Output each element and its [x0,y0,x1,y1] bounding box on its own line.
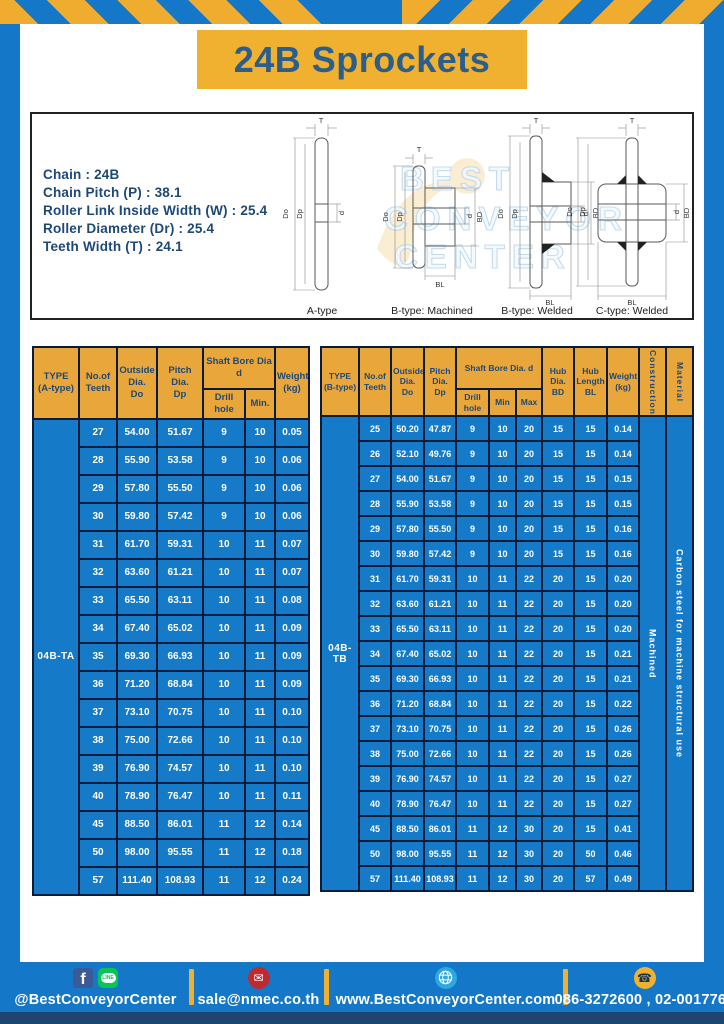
col-header-pitch-dia: Pitch Dia. Dp [157,347,203,419]
table-cell: 0.06 [275,447,309,475]
table-cell: 12 [245,839,275,867]
table-cell: 40 [359,791,391,816]
table-cell: 98.00 [391,841,424,866]
table-cell: 15 [574,691,607,716]
table-cell: 10 [456,666,489,691]
dim-label-dp: Dp [395,212,404,222]
table-cell: 12 [245,867,275,895]
table-cell: 55.50 [157,475,203,503]
dim-label-t: T [417,145,422,154]
table-cell: 71.20 [117,671,157,699]
dim-label-dp: Dp [510,209,519,219]
table-cell: 15 [574,416,607,441]
table-cell: 15 [574,591,607,616]
table-cell: 9 [456,441,489,466]
table-cell: 11 [245,643,275,671]
table-cell: 50.20 [391,416,424,441]
table-row: 04B-TB2550.2047.879102015150.14MachinedC… [321,416,693,441]
spec-line: Roller Diameter (Dr) : 25.4 [43,220,267,238]
table-row: 4588.5086.0111123020150.41 [321,816,693,841]
table-cell: 0.09 [275,643,309,671]
table-cell: 71.20 [391,691,424,716]
table-cell: 29 [79,475,117,503]
construction-cell: Machined [639,416,666,891]
table-cell: 39 [79,755,117,783]
table-cell: 10 [456,691,489,716]
table-cell: 15 [574,716,607,741]
table-cell: 9 [456,416,489,441]
dim-label-bd: BD [682,207,691,218]
spec-line: Chain : 24B [43,166,267,184]
table-cell: 10 [203,559,245,587]
table-cell: 10 [489,516,516,541]
table-a-type: TYPE (A-type) No.of Teeth Outside Dia. D… [32,346,310,896]
table-cell: 0.41 [607,816,639,841]
table-cell: 11 [456,841,489,866]
table-cell: 0.06 [275,503,309,531]
table-cell: 61.70 [391,566,424,591]
table-cell: 70.75 [157,699,203,727]
email-address[interactable]: sale@nmec.co.th [198,992,320,1008]
envelope-glyph: ✉ [253,972,263,984]
table-cell: 27 [359,466,391,491]
table-cell: 0.27 [607,766,639,791]
table-cell: 20 [542,616,574,641]
table-cell: 76.90 [117,755,157,783]
table-cell: 57 [359,866,391,891]
dim-label-do: Do [381,212,390,222]
table-cell: 20 [516,416,542,441]
table-cell: 34 [359,641,391,666]
dim-label-dp: Dp [578,207,587,217]
table-a-header: TYPE (A-type) No.of Teeth Outside Dia. D… [33,347,309,419]
table-cell: 15 [542,491,574,516]
title-banner: 24B Sprockets [197,30,527,89]
table-row: 2957.8055.509102015150.16 [321,516,693,541]
table-cell: 0.26 [607,741,639,766]
table-cell: 20 [542,591,574,616]
table-cell: 54.00 [391,466,424,491]
footer-website-group[interactable]: www.BestConveyorCenter.com [329,967,563,1008]
table-cell: 0.46 [607,841,639,866]
table-cell: 61.21 [157,559,203,587]
table-cell: 35 [359,666,391,691]
table-cell: 10 [203,699,245,727]
email-icon[interactable]: ✉ [248,967,270,989]
table-cell: 15 [574,791,607,816]
table-cell: 0.16 [607,516,639,541]
table-cell: 10 [489,441,516,466]
table-cell: 10 [203,531,245,559]
table-cell: 9 [203,503,245,531]
dim-label-bd: BD [475,211,484,222]
table-cell: 63.60 [117,559,157,587]
table-row: 3569.3066.9310112220150.21 [321,666,693,691]
table-row: 04B-TA2754.0051.679100.05 [33,419,309,447]
table-cell: 37 [359,716,391,741]
table-cell: 20 [516,441,542,466]
table-cell: 72.66 [157,727,203,755]
globe-glyph [438,970,453,985]
table-cell: 38 [359,741,391,766]
table-cell: 0.06 [275,475,309,503]
table-cell: 78.90 [117,783,157,811]
table-cell: 11 [489,641,516,666]
table-cell: 0.26 [607,716,639,741]
col-header-max: Max [516,389,542,416]
col-header-drill-hole: Drill hole [203,389,245,419]
table-cell: 15 [542,441,574,466]
table-row: 2754.0051.679102015150.15 [321,466,693,491]
table-cell: 45 [359,816,391,841]
table-cell: 33 [359,616,391,641]
table-cell: 22 [516,716,542,741]
table-cell: 0.24 [275,867,309,895]
table-cell: 10 [456,766,489,791]
table-cell: 68.84 [157,671,203,699]
table-cell: 10 [203,643,245,671]
table-cell: 15 [574,566,607,591]
dim-label-bd: BD [591,207,600,218]
table-cell: 10 [456,566,489,591]
table-cell: 51.67 [424,466,456,491]
table-cell: 98.00 [117,839,157,867]
table-cell: 9 [456,516,489,541]
table-cell: 22 [516,791,542,816]
table-cell: 59.80 [391,541,424,566]
table-cell: 63.11 [424,616,456,641]
table-cell: 10 [203,783,245,811]
table-cell: 22 [516,566,542,591]
table-cell: 10 [489,416,516,441]
bottom-navy-strip [0,1012,724,1024]
table-cell: 11 [203,839,245,867]
table-cell: 20 [542,841,574,866]
table-cell: 31 [359,566,391,591]
table-row: 3976.9074.5710112220150.27 [321,766,693,791]
table-row: 3773.1070.7510112220150.26 [321,716,693,741]
table-row: 3161.7059.3110112220150.20 [321,566,693,591]
table-cell: 63.60 [391,591,424,616]
table-a-body: 04B-TA2754.0051.679100.052855.9053.58910… [33,419,309,895]
table-cell: 11 [489,766,516,791]
table-cell: 11 [489,666,516,691]
table-cell: 15 [574,666,607,691]
table-cell: 57 [574,866,607,891]
col-header-weight: Weight (kg) [607,347,639,416]
table-cell: 10 [245,419,275,447]
dim-label-t: T [534,116,539,125]
table-cell: 36 [79,671,117,699]
table-cell: 20 [542,666,574,691]
page-title: 24B Sprockets [234,39,491,81]
table-cell: 0.15 [607,466,639,491]
table-cell: 15 [574,616,607,641]
table-cell: 67.40 [391,641,424,666]
table-cell: 10 [203,671,245,699]
table-b-header: TYPE (B-type) No.of Teeth Outside Dia. D… [321,347,693,416]
table-cell: 15 [542,466,574,491]
table-cell: 53.58 [424,491,456,516]
table-cell: 39 [359,766,391,791]
table-cell: 86.01 [424,816,456,841]
table-cell: 63.11 [157,587,203,615]
table-cell: 73.10 [117,699,157,727]
table-row: 3875.0072.6610112220150.26 [321,741,693,766]
table-cell: 9 [456,541,489,566]
table-cell: 10 [245,475,275,503]
dim-label-do: Do [281,209,290,219]
table-cell: 11 [489,691,516,716]
table-cell: 70.75 [424,716,456,741]
facebook-letter: f [80,971,85,988]
table-b-body: 04B-TB2550.2047.879102015150.14MachinedC… [321,416,693,891]
table-cell: 11 [489,716,516,741]
top-stripes-left [0,0,322,24]
table-cell: 0.49 [607,866,639,891]
table-cell: 10 [489,466,516,491]
table-cell: 30 [516,816,542,841]
phone-icon[interactable]: ☎ [634,967,656,989]
table-cell: 22 [516,616,542,641]
table-cell: 76.47 [424,791,456,816]
dim-label-t: T [630,116,635,125]
footer-social-group[interactable]: f LINE @BestConveyorCenter [3,967,189,1008]
table-cell: 69.30 [117,643,157,671]
table-cell: 65.02 [157,615,203,643]
table-cell: 0.07 [275,559,309,587]
table-cell: 10 [203,755,245,783]
dim-label-bl: BL [435,280,444,289]
footer-email-group[interactable]: ✉ sale@nmec.co.th [194,967,324,1008]
table-cell: 67.40 [117,615,157,643]
table-cell: 55.90 [117,447,157,475]
drawing-caption: A-type [307,305,338,317]
table-cell: 59.31 [424,566,456,591]
table-cell: 49.76 [424,441,456,466]
table-cell: 50 [359,841,391,866]
table-cell: 12 [489,816,516,841]
table-cell: 10 [245,447,275,475]
dim-label-do: Do [565,207,574,217]
table-row: 3671.2068.8410112220150.22 [321,691,693,716]
table-row: 3059.8057.429102015150.16 [321,541,693,566]
table-row: 3263.6061.2110112220150.20 [321,591,693,616]
table-cell: 65.50 [117,587,157,615]
table-cell: 0.20 [607,616,639,641]
line-bubble: LINE [101,973,116,983]
col-header-weight: Weight (kg) [275,347,309,419]
type-cell: 04B-TB [321,416,359,891]
table-cell: 74.57 [424,766,456,791]
col-header-construction: Construction [639,347,666,416]
table-cell: 37 [79,699,117,727]
dim-label-d: d [672,210,681,214]
table-cell: 10 [456,641,489,666]
table-cell: 22 [516,591,542,616]
table-cell: 11 [245,699,275,727]
table-cell: 52.10 [391,441,424,466]
footer-phone-group[interactable]: ☎ 086-3272600 , 02-0017766 [568,967,722,1008]
table-cell: 20 [542,766,574,791]
table-cell: 50 [574,841,607,866]
table-cell: 59.80 [117,503,157,531]
col-header-hub-length: Hub Length BL [574,347,607,416]
table-cell: 32 [79,559,117,587]
table-cell: 0.21 [607,641,639,666]
table-cell: 59.31 [157,531,203,559]
col-header-pitch-dia: Pitch Dia. Dp [424,347,456,416]
material-cell: Carbon steel for machine structural use [666,416,693,891]
table-cell: 0.14 [275,811,309,839]
footer-contact-bar: f LINE @BestConveyorCenter ✉ sale@nmec.c… [0,962,724,1012]
col-header-drill-hole: Drill hole [456,389,489,416]
table-cell: 57.80 [391,516,424,541]
table-cell: 28 [79,447,117,475]
table-cell: 30 [79,503,117,531]
table-cell: 47.87 [424,416,456,441]
table-cell: 10 [456,591,489,616]
table-cell: 95.55 [157,839,203,867]
facebook-icon[interactable]: f [73,968,93,988]
table-cell: 15 [574,441,607,466]
table-cell: 9 [203,475,245,503]
table-cell: 15 [574,741,607,766]
table-cell: 12 [489,841,516,866]
table-cell: 20 [516,541,542,566]
dim-label-d: d [337,211,346,215]
table-cell: 57.42 [424,541,456,566]
table-cell: 11 [245,783,275,811]
table-cell: 22 [516,741,542,766]
table-cell: 15 [574,466,607,491]
table-cell: 11 [245,587,275,615]
table-cell: 0.20 [607,566,639,591]
table-cell: 11 [456,866,489,891]
table-cell: 15 [574,516,607,541]
table-cell: 10 [203,727,245,755]
spec-line: Chain Pitch (P) : 38.1 [43,184,267,202]
table-cell: 15 [574,641,607,666]
table-cell: 0.14 [607,441,639,466]
col-header-outside-dia: Outside Dia. Do [117,347,157,419]
col-header-min: Min [489,389,516,416]
dim-label-t: T [319,116,324,125]
table-b-type: TYPE (B-type) No.of Teeth Outside Dia. D… [320,346,694,892]
table-cell: 108.93 [424,866,456,891]
table-cell: 55.50 [424,516,456,541]
table-cell: 73.10 [391,716,424,741]
table-cell: 0.11 [275,783,309,811]
table-row: 2855.9053.589102015150.15 [321,491,693,516]
table-cell: 75.00 [391,741,424,766]
table-cell: 15 [574,816,607,841]
table-cell: 10 [203,587,245,615]
table-cell: 0.10 [275,699,309,727]
table-cell: 9 [203,419,245,447]
table-cell: 20 [542,816,574,841]
phone-numbers[interactable]: 086-3272600 , 02-0017766 [555,992,724,1008]
drawing-caption: B-type: Machined [391,305,473,317]
table-cell: 22 [516,666,542,691]
table-cell: 11 [245,755,275,783]
table-cell: 57 [79,867,117,895]
phone-glyph: ☎ [637,972,652,984]
social-handle[interactable]: @BestConveyorCenter [14,992,176,1008]
table-cell: 57.80 [117,475,157,503]
col-header-outside-dia: Outside Dia. Do [391,347,424,416]
table-cell: 15 [542,541,574,566]
col-header-material: Material [666,347,693,416]
table-cell: 72.66 [424,741,456,766]
table-cell: 31 [79,531,117,559]
table-cell: 65.50 [391,616,424,641]
table-cell: 38 [79,727,117,755]
drawing-a-type [315,138,328,290]
line-app-icon[interactable]: LINE [98,968,118,988]
table-cell: 22 [516,641,542,666]
table-cell: 0.15 [607,491,639,516]
table-row: 57111.40108.9311123020570.49 [321,866,693,891]
table-cell: 11 [489,591,516,616]
table-cell: 35 [79,643,117,671]
table-cell: 12 [245,811,275,839]
table-cell: 9 [456,491,489,516]
table-cell: 86.01 [157,811,203,839]
table-cell: 66.93 [157,643,203,671]
table-cell: 15 [574,766,607,791]
table-cell: 9 [203,447,245,475]
table-cell: 11 [245,727,275,755]
table-cell: 10 [489,491,516,516]
table-cell: 15 [542,516,574,541]
type-cell: 04B-TA [33,419,79,895]
table-cell: 78.90 [391,791,424,816]
table-cell: 10 [203,615,245,643]
spec-panel: BEST CONVEYOR CENTER T Do Dp [30,112,694,320]
dim-label-dp: Dp [295,209,304,219]
table-cell: 20 [542,641,574,666]
dim-label-do: Do [496,209,505,219]
drawing-caption: C-type: Welded [596,305,668,317]
table-cell: 20 [542,716,574,741]
table-cell: 69.30 [391,666,424,691]
table-cell: 0.07 [275,531,309,559]
col-header-type: TYPE (B-type) [321,347,359,416]
table-cell: 11 [245,559,275,587]
table-cell: 0.09 [275,671,309,699]
table-cell: 20 [516,466,542,491]
table-cell: 20 [516,516,542,541]
website-url[interactable]: www.BestConveyorCenter.com [336,992,556,1008]
table-cell: 11 [245,671,275,699]
table-cell: 57.42 [157,503,203,531]
table-cell: 108.93 [157,867,203,895]
page-frame: 24B Sprockets BEST CONVEYOR CENTER [0,0,724,1024]
table-row: 2652.1049.769102015150.14 [321,441,693,466]
table-cell: 20 [542,866,574,891]
spec-line: Roller Link Inside Width (W) : 25.4 [43,202,267,220]
table-cell: 95.55 [424,841,456,866]
table-cell: 20 [542,566,574,591]
table-cell: 61.70 [117,531,157,559]
table-cell: 51.67 [157,419,203,447]
globe-icon[interactable] [435,967,457,989]
table-cell: 26 [359,441,391,466]
table-cell: 10 [456,791,489,816]
table-cell: 20 [542,791,574,816]
table-cell: 10 [489,541,516,566]
